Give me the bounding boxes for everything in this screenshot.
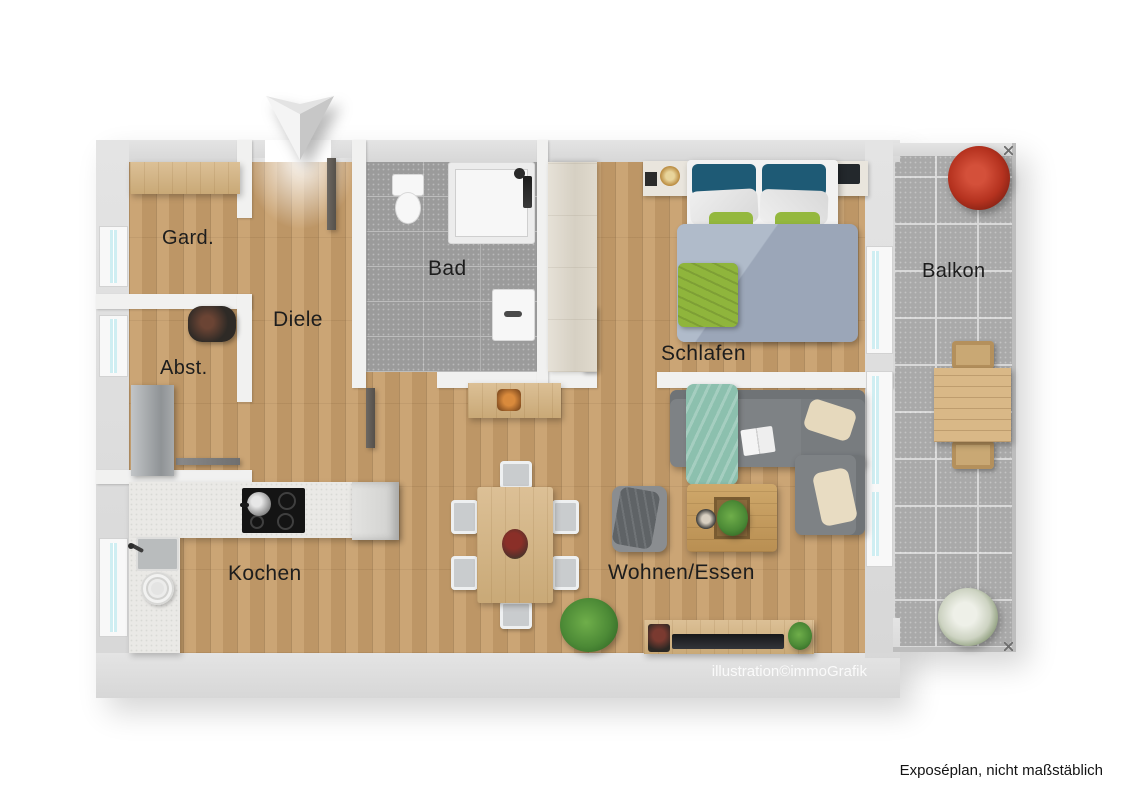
tv-screen: [672, 634, 784, 649]
table-centerpiece: [502, 529, 528, 559]
dining-chair-left-1: [451, 500, 478, 534]
room-label-diele: Diele: [273, 308, 323, 332]
dining-chair-top: [500, 461, 532, 489]
tv-decor-left: [648, 624, 670, 652]
balcony-table: [934, 368, 1011, 442]
pot-on-stove: [247, 492, 271, 516]
wall-top-right: [331, 140, 900, 162]
nightstand-clock: [660, 166, 680, 186]
cooktop-burner-bl: [250, 515, 264, 529]
room-label-wohnen-essen: Wohnen/Essen: [608, 561, 755, 585]
floor-plant: [560, 598, 618, 652]
cooktop-burner-br: [277, 513, 294, 530]
dining-chair-right-1: [552, 500, 579, 534]
balcony-plant-white: [938, 588, 998, 646]
balcony-chair-top: [952, 341, 994, 369]
window-gard-glass: [110, 230, 117, 283]
room-label-bad: Bad: [428, 257, 467, 281]
abst-sliding-door: [176, 458, 240, 465]
nightstand-book: [645, 172, 657, 186]
room-label-abst: Abst.: [160, 357, 208, 380]
wall-bad-left: [352, 140, 366, 388]
sink-faucet-knob: [128, 543, 134, 549]
wall-bad-right: [537, 140, 548, 388]
toilet-bowl: [395, 192, 421, 224]
washbasin-faucet: [504, 311, 522, 317]
balcony-railing-right: [1012, 143, 1016, 652]
sofa-blanket-teal: [686, 384, 738, 485]
window-abst-glass: [110, 319, 117, 373]
footer-note: Exposéplan, nicht maßstäblich: [700, 762, 1103, 779]
vacuum-robot: [188, 306, 236, 342]
dining-chair-left-2: [451, 556, 478, 590]
nightstand-tray: [836, 164, 860, 184]
coffee-table-bowl: [696, 509, 716, 529]
balcony-railing-bottom: [893, 647, 1016, 652]
shower-fixture: [523, 176, 532, 208]
railing-joint-bottom: [1004, 642, 1013, 651]
window-bedroom: [866, 246, 893, 354]
sliding-door-divider: [869, 484, 882, 492]
window-bedroom-glass: [872, 251, 879, 349]
kitchen-sink: [136, 537, 179, 571]
room-label-gard: Gard.: [162, 227, 214, 250]
sideboard-decor: [497, 389, 521, 411]
balcony-sliding-door-glass: [872, 376, 879, 562]
kitchen-tall-cabinet: [352, 482, 399, 540]
wardrobe-shelf: [130, 162, 240, 194]
balcony-sliding-door: [866, 371, 893, 567]
window-kitchen-glass: [110, 543, 117, 632]
tv-decor-plant: [788, 622, 812, 650]
bedroom-closet: [548, 162, 597, 372]
bathroom-door-leaf: [366, 388, 375, 448]
coffee-table-plant: [717, 500, 748, 536]
entrance-door-leaf: [327, 158, 336, 230]
balcony-plant-red: [948, 146, 1010, 210]
bed-blanket-green: [678, 263, 738, 327]
sliding-door-divider2: [869, 556, 882, 564]
pot-handle: [240, 503, 249, 507]
room-label-schlafen: Schlafen: [661, 342, 746, 366]
wall-abst-right: [237, 294, 252, 402]
open-book: [740, 426, 775, 456]
floorplan-page: { "plan": { "rooms": [ {"id": "gard", "l…: [0, 0, 1123, 805]
dining-chair-right-2: [552, 556, 579, 590]
north-arrow-icon: [258, 88, 342, 164]
room-label-balkon: Balkon: [922, 260, 986, 283]
railing-joint-top: [1004, 146, 1013, 155]
plate-stack-top: [151, 582, 164, 595]
dining-chair-bottom: [500, 601, 532, 629]
room-label-kochen: Kochen: [228, 562, 302, 586]
cooktop-burner-tr: [278, 492, 296, 510]
washing-machine: [131, 385, 174, 476]
illustration-credit: illustration©immoGrafik: [500, 663, 867, 680]
entrance-light-glow: [245, 158, 357, 230]
balcony-chair-bottom: [952, 441, 994, 469]
